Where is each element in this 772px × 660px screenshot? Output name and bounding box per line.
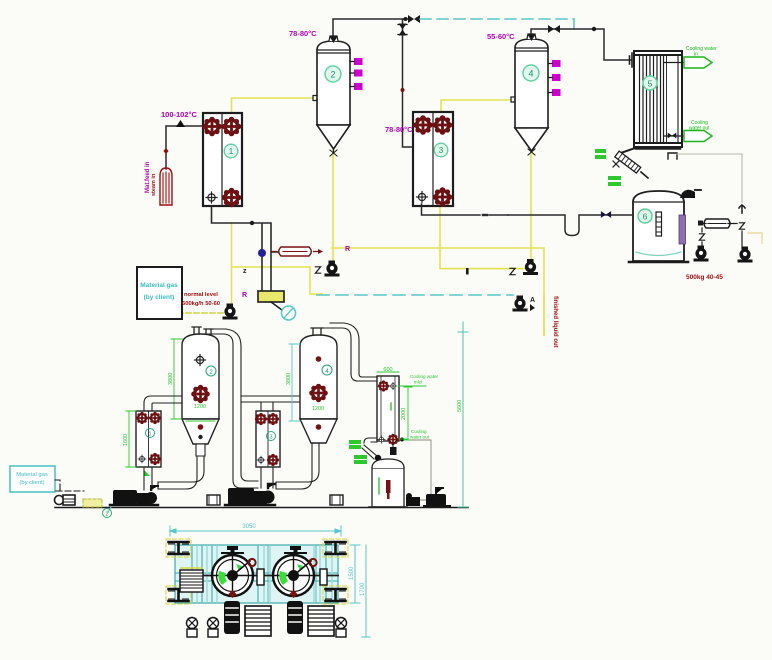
svg-text:1: 1: [229, 147, 234, 156]
svg-text:(by client): (by client): [144, 294, 175, 301]
svg-text:6: 6: [643, 212, 648, 222]
svg-text:1500: 1500: [349, 566, 355, 580]
svg-text:Material gas: Material gas: [16, 472, 48, 478]
svg-text:3800: 3800: [168, 373, 174, 385]
svg-text:1200: 1200: [312, 406, 324, 412]
svg-text:78-80°C: 78-80°C: [385, 125, 413, 134]
svg-text:water out: water out: [689, 126, 710, 132]
svg-text:(by client): (by client): [19, 480, 44, 486]
svg-text:55-60°C: 55-60°C: [487, 32, 515, 41]
svg-text:R: R: [345, 246, 350, 253]
svg-text:Cooling water: Cooling water: [686, 46, 717, 52]
svg-text:4: 4: [528, 69, 533, 79]
svg-text:3050: 3050: [242, 524, 256, 530]
svg-text:in: in: [694, 52, 698, 58]
svg-text:inlet: inlet: [414, 380, 423, 385]
svg-text:normal level: normal level: [184, 292, 218, 298]
svg-text:water out: water out: [410, 435, 430, 440]
svg-text:Material gas: Material gas: [140, 282, 178, 289]
svg-text:Cooling water: Cooling water: [410, 374, 439, 379]
svg-text:2: 2: [105, 512, 108, 518]
svg-text:100-102°C: 100-102°C: [161, 110, 198, 119]
svg-text:500kg 40-45: 500kg 40-45: [686, 274, 723, 281]
svg-text:R: R: [242, 292, 247, 299]
svg-text:3: 3: [439, 146, 444, 155]
svg-text:2000: 2000: [401, 408, 407, 420]
svg-text:5600: 5600: [457, 400, 463, 412]
svg-text:600: 600: [383, 367, 392, 373]
svg-text:3800: 3800: [286, 373, 292, 385]
svg-text:1700: 1700: [360, 582, 366, 596]
svg-text:3: 3: [269, 435, 272, 441]
svg-text:2: 2: [330, 70, 335, 80]
svg-text:A: A: [530, 297, 535, 304]
svg-text:Cooling: Cooling: [411, 429, 427, 434]
svg-text:steam in: steam in: [151, 173, 157, 196]
svg-text:1: 1: [148, 432, 151, 438]
svg-text:finished liquid out: finished liquid out: [552, 296, 558, 348]
svg-text:78-80°C: 78-80°C: [289, 29, 317, 38]
svg-text:z: z: [243, 268, 247, 275]
svg-text:5: 5: [648, 79, 653, 89]
svg-text:1200: 1200: [194, 404, 206, 410]
svg-text:600kg/h 50-60: 600kg/h 50-60: [182, 301, 220, 307]
svg-text:1600: 1600: [123, 434, 129, 446]
